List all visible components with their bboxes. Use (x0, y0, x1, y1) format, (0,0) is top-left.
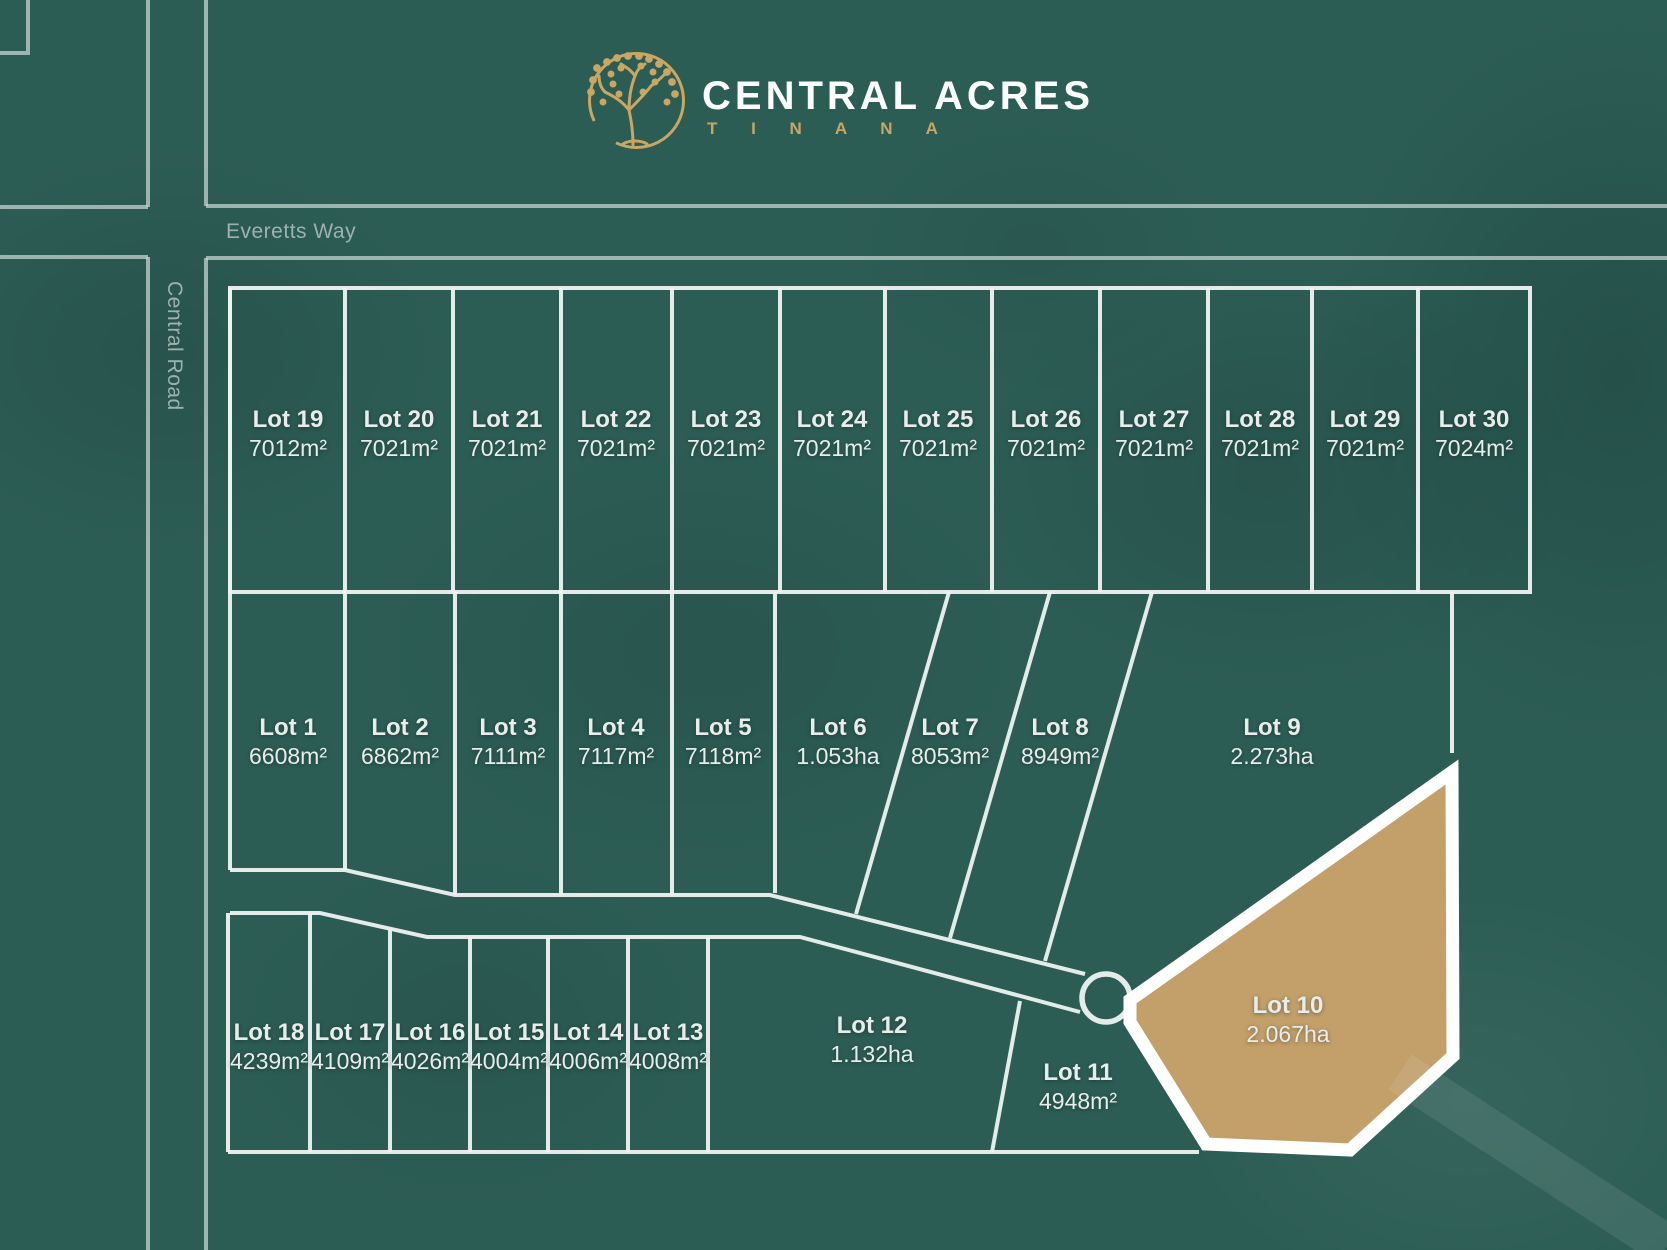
lot-label-21: Lot 21 7021m² (468, 406, 546, 462)
lot-label-16: Lot 16 4026m² (391, 1019, 469, 1075)
lot-label-17: Lot 17 4109m² (311, 1019, 389, 1075)
road-label-central-road: Central Road (162, 281, 186, 411)
aerial-road-band (1400, 1072, 1667, 1246)
lot-label-5: Lot 5 7118m² (685, 714, 761, 770)
lot-label-20: Lot 20 7021m² (360, 406, 438, 462)
lot-label-19: Lot 19 7012m² (249, 406, 327, 462)
lot-label-7: Lot 7 8053m² (911, 714, 989, 770)
lot-label-18: Lot 18 4239m² (230, 1019, 308, 1075)
tree-in-circle-icon (583, 50, 687, 154)
brand-subtitle: T I N A N A (707, 119, 952, 139)
lot-label-28: Lot 28 7021m² (1221, 406, 1299, 462)
lot-label-2: Lot 2 6862m² (361, 714, 439, 770)
lot-label-30: Lot 30 7024m² (1435, 406, 1513, 462)
lot-label-3: Lot 3 7111m² (471, 714, 546, 770)
lot-label-27: Lot 27 7021m² (1115, 406, 1193, 462)
lot-label-26: Lot 26 7021m² (1007, 406, 1085, 462)
lot-label-22: Lot 22 7021m² (577, 406, 655, 462)
lot-label-15: Lot 15 4004m² (470, 1019, 548, 1075)
lot-label-6: Lot 6 1.053ha (796, 714, 879, 770)
lot-label-9: Lot 9 2.273ha (1230, 714, 1313, 770)
lot-label-8: Lot 8 8949m² (1021, 714, 1099, 770)
lot-label-24: Lot 24 7021m² (793, 406, 871, 462)
lot-label-23: Lot 23 7021m² (687, 406, 765, 462)
lot-label-25: Lot 25 7021m² (899, 406, 977, 462)
lot-label-1: Lot 1 6608m² (249, 714, 327, 770)
lot-label-13: Lot 13 4008m² (629, 1019, 707, 1075)
lot-label-12: Lot 12 1.132ha (830, 1012, 913, 1068)
lot-label-29: Lot 29 7021m² (1326, 406, 1404, 462)
cul-de-sac-circle (1082, 974, 1130, 1022)
lot-label-4: Lot 4 7117m² (578, 714, 654, 770)
road-label-everetts-way: Everetts Way (226, 220, 356, 244)
lot-label-10-highlighted: Lot 10 2.067ha (1246, 992, 1329, 1048)
masterplan-page: CENTRAL ACRES T I N A N A Everetts Way C… (0, 0, 1667, 1250)
lot-label-14: Lot 14 4006m² (549, 1019, 627, 1075)
brand-title: CENTRAL ACRES (702, 74, 1094, 119)
lot-label-11: Lot 11 4948m² (1039, 1059, 1117, 1115)
